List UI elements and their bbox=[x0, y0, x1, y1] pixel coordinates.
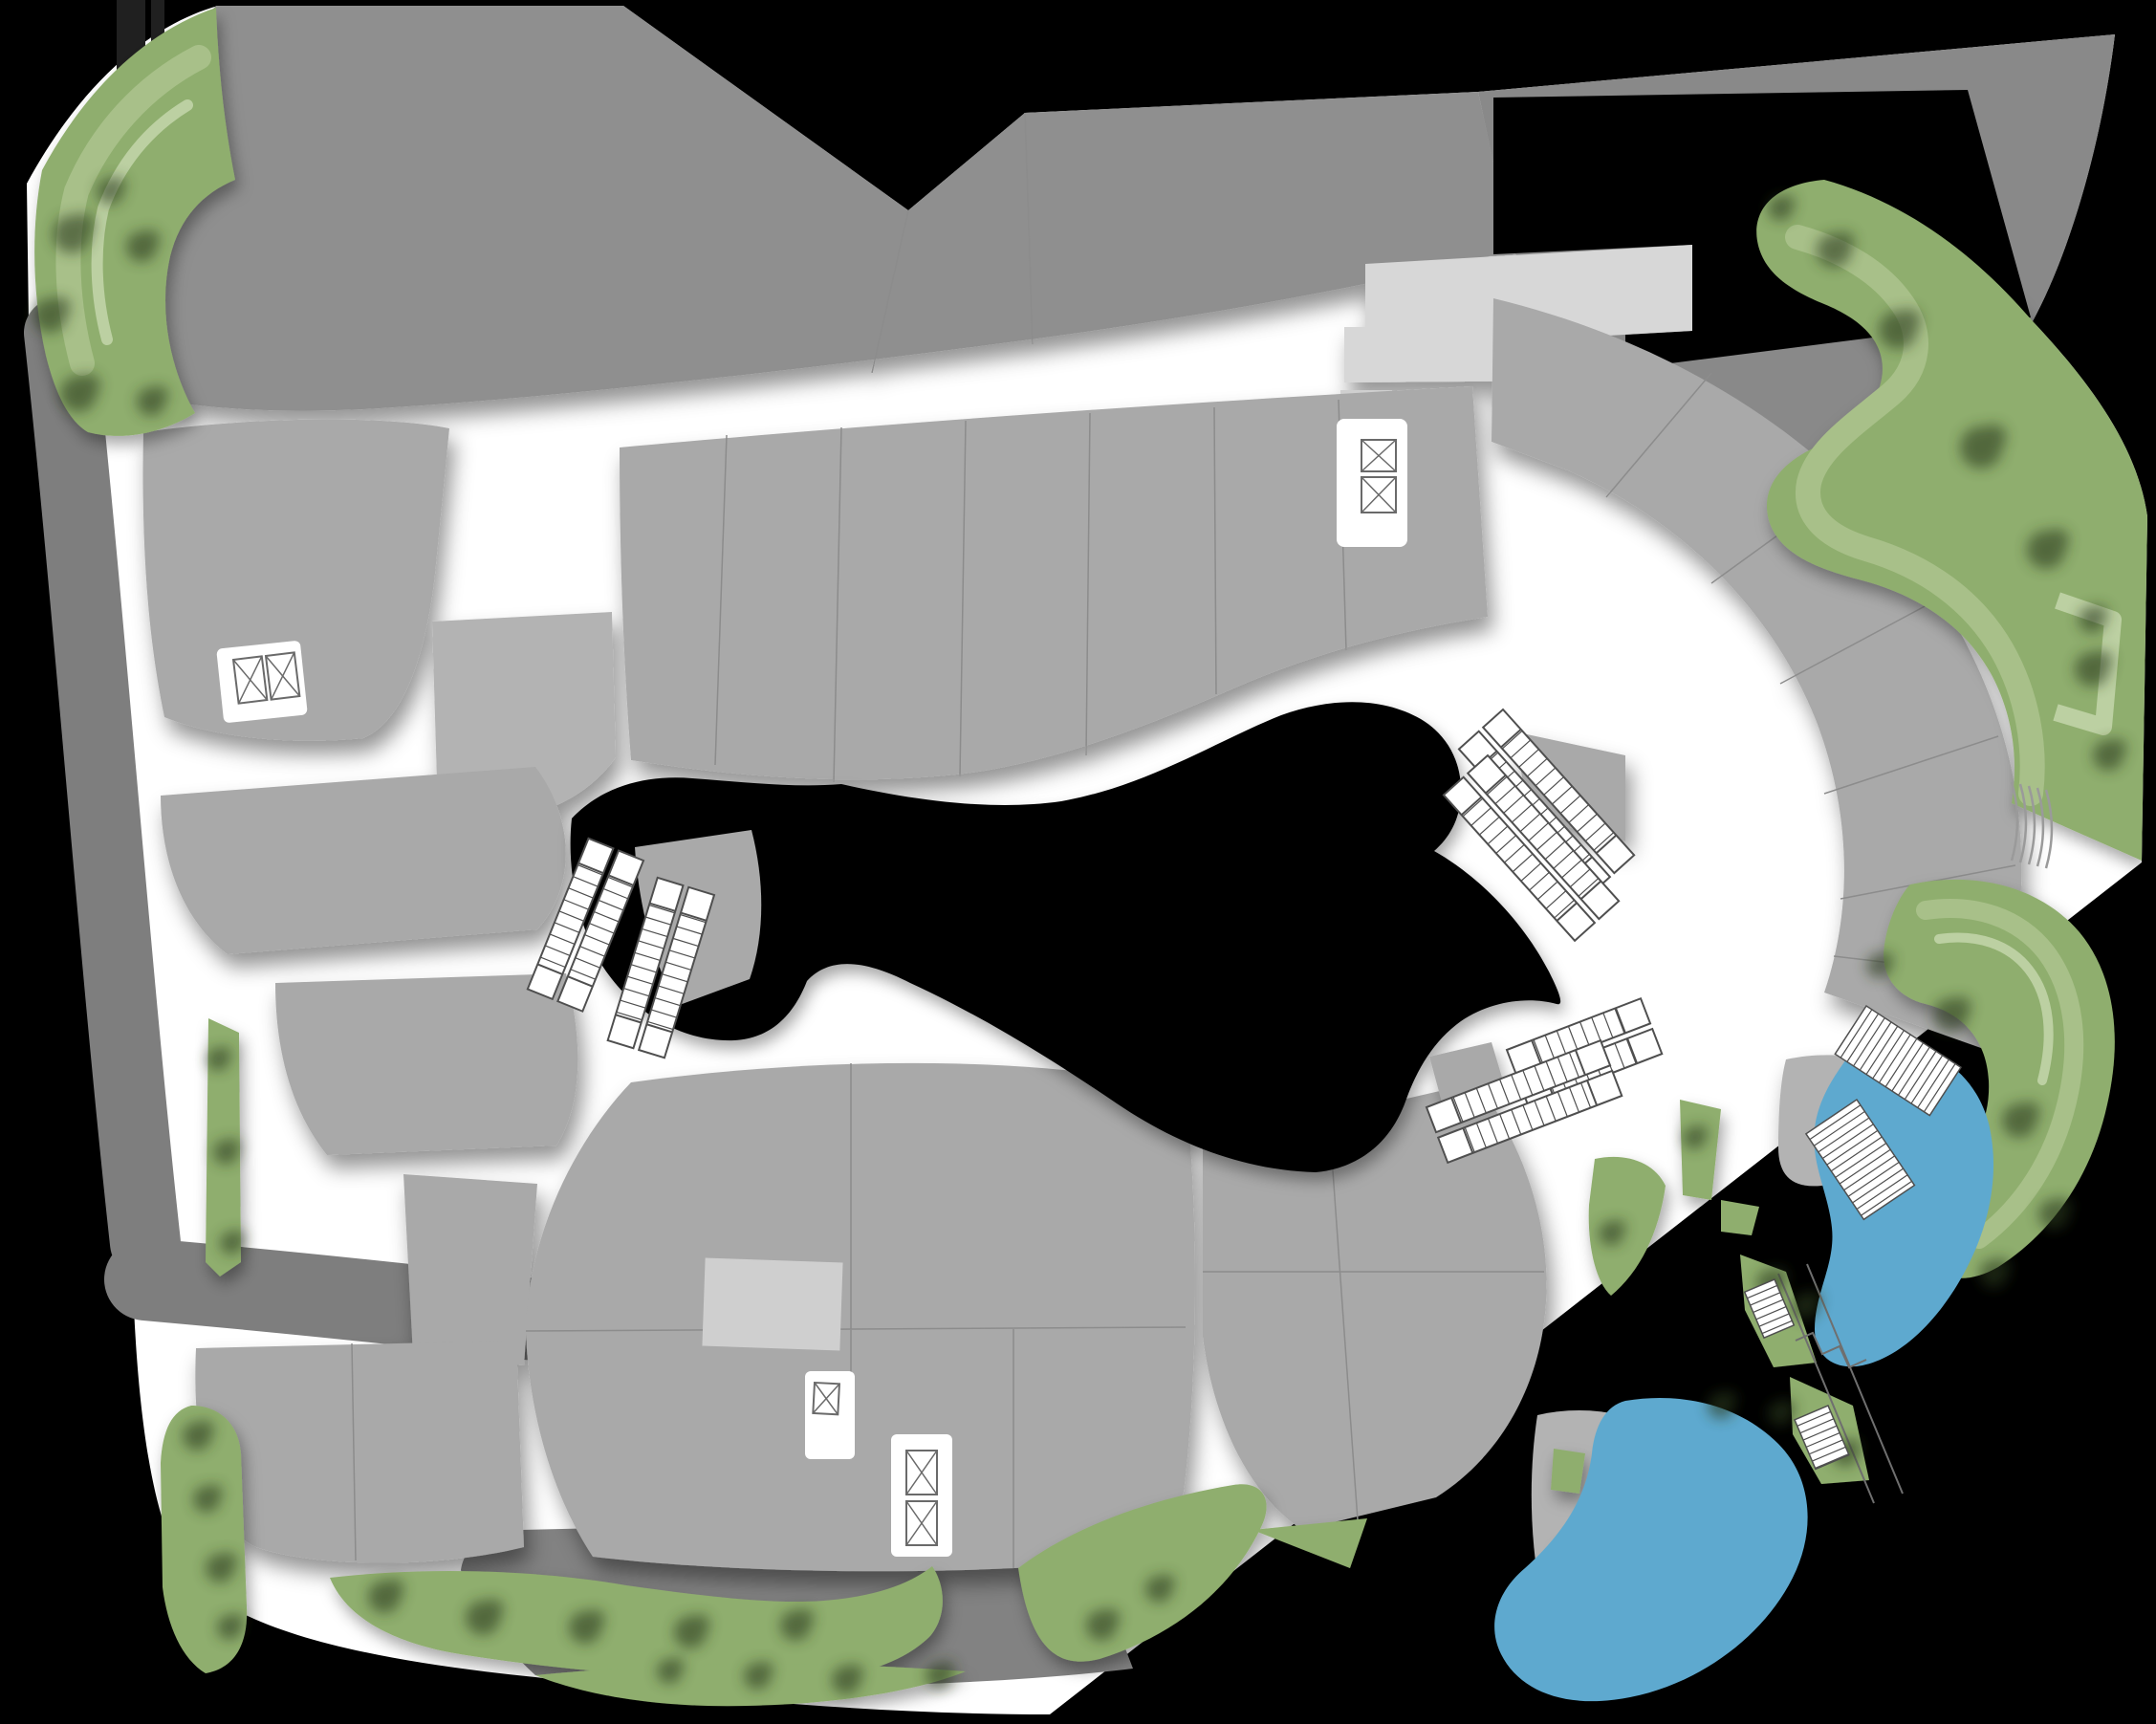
elevator-icon bbox=[233, 656, 267, 703]
tree-icon bbox=[197, 1421, 214, 1438]
building-b2 bbox=[161, 767, 566, 954]
tree-icon bbox=[846, 1665, 863, 1682]
tree-icon bbox=[110, 177, 126, 193]
tree-icon bbox=[795, 1608, 814, 1626]
elevator-icon bbox=[906, 1501, 937, 1545]
tree-icon bbox=[220, 1553, 237, 1570]
tree-icon bbox=[1694, 1125, 1708, 1139]
tree-icon bbox=[78, 374, 100, 396]
tree-icon bbox=[483, 1599, 504, 1620]
elevator-icon bbox=[813, 1383, 839, 1414]
building-bl bbox=[195, 1341, 524, 1563]
elevator-icon bbox=[1361, 440, 1396, 471]
tree-icon bbox=[229, 1614, 245, 1629]
tree-icon bbox=[231, 1231, 245, 1244]
tree-icon bbox=[1780, 195, 1796, 210]
tree-icon bbox=[1981, 425, 2006, 449]
tree-icon bbox=[1159, 1575, 1175, 1591]
tree-icon bbox=[2108, 738, 2126, 756]
tree-icon bbox=[1993, 1258, 2011, 1276]
elevator-icon bbox=[1361, 477, 1396, 513]
tree-icon bbox=[1879, 952, 1894, 968]
tree-icon bbox=[2092, 605, 2108, 622]
tree-icon bbox=[384, 1579, 403, 1598]
tree-icon bbox=[72, 213, 95, 236]
tree-icon bbox=[218, 1047, 231, 1060]
elevator-icon bbox=[906, 1451, 937, 1495]
tree-icon bbox=[2046, 529, 2069, 552]
tree-icon bbox=[585, 1609, 604, 1628]
tree-icon bbox=[1805, 1292, 1821, 1308]
tree-icon bbox=[226, 1139, 241, 1154]
tree-icon bbox=[1611, 1220, 1626, 1235]
tree-icon bbox=[1834, 231, 1855, 252]
tree-icon bbox=[2019, 1102, 2040, 1123]
tree-icon bbox=[690, 1614, 709, 1633]
tree-icon bbox=[207, 1485, 223, 1501]
roof-light-bc bbox=[702, 1258, 842, 1351]
site-plan-stage bbox=[0, 0, 2156, 1724]
green-se-p5 bbox=[1551, 1449, 1585, 1494]
tree-icon bbox=[151, 386, 168, 404]
tree-icon bbox=[1950, 996, 1971, 1017]
site-plan-canvas bbox=[0, 0, 2156, 1724]
tree-icon bbox=[1721, 1391, 1737, 1408]
tree-icon bbox=[939, 1661, 955, 1677]
tree-icon bbox=[757, 1662, 773, 1678]
tree-icon bbox=[2054, 1197, 2072, 1215]
tree-icon bbox=[1898, 309, 1921, 332]
tree-icon bbox=[142, 229, 160, 248]
building-b4c bbox=[403, 1174, 537, 1365]
tree-icon bbox=[669, 1658, 685, 1673]
elevator-icon bbox=[266, 652, 299, 699]
tree-icon bbox=[1780, 1400, 1796, 1415]
tree-icon bbox=[50, 296, 71, 317]
building-bc bbox=[526, 1063, 1195, 1571]
building-b4 bbox=[275, 973, 577, 1155]
tree-icon bbox=[2092, 650, 2113, 671]
tree-icon bbox=[1101, 1608, 1120, 1626]
